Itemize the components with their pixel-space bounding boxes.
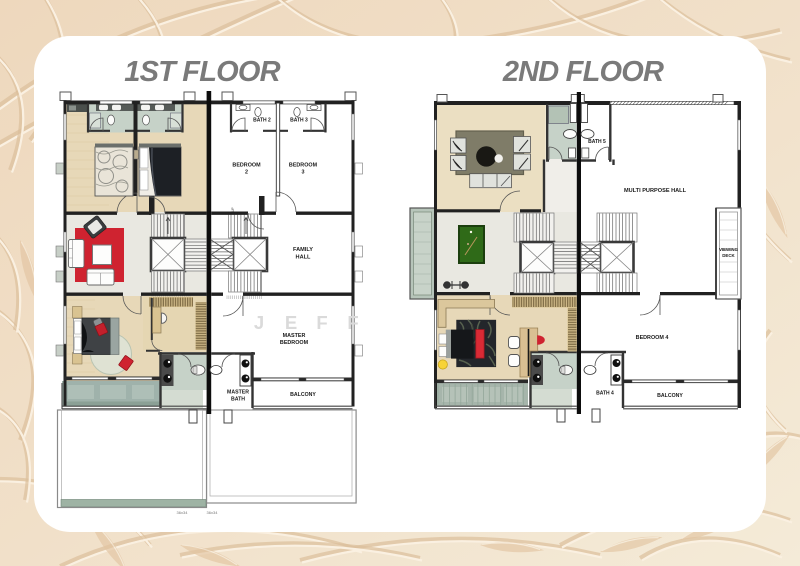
svg-text:MASTER: MASTER (227, 390, 249, 396)
svg-text:1ST FLOOR: 1ST FLOOR (124, 56, 280, 88)
svg-text:J: J (254, 312, 264, 333)
svg-text:3: 3 (302, 170, 305, 176)
svg-text:BEDROOM: BEDROOM (289, 163, 318, 169)
svg-text:BATH: BATH (231, 397, 245, 403)
svg-text:BALCONY: BALCONY (657, 393, 683, 399)
svg-text:F: F (316, 312, 327, 333)
svg-text:2: 2 (245, 170, 248, 176)
svg-text:BATH 3: BATH 3 (290, 118, 308, 124)
svg-text:BALCONY: BALCONY (290, 392, 316, 398)
svg-text:MASTER: MASTER (283, 333, 306, 339)
svg-text:36x34: 36x34 (207, 510, 219, 515)
svg-text:FAMILY: FAMILY (293, 247, 313, 253)
svg-text:BATH 4: BATH 4 (596, 391, 614, 397)
svg-text:BEDROOM: BEDROOM (280, 340, 309, 346)
svg-text:VIEWING: VIEWING (719, 247, 739, 252)
svg-text:BEDROOM: BEDROOM (232, 163, 261, 169)
svg-text:DECK: DECK (722, 253, 735, 258)
svg-text:F: F (347, 312, 358, 333)
svg-text:36x34: 36x34 (177, 510, 189, 515)
svg-text:BATH 2: BATH 2 (253, 118, 271, 124)
svg-text:HALL: HALL (296, 255, 311, 261)
svg-text:BATH 5: BATH 5 (588, 139, 606, 145)
svg-text:MULTI PURPOSE HALL: MULTI PURPOSE HALL (624, 188, 687, 194)
svg-text:UP: UP (231, 206, 235, 212)
svg-text:E: E (285, 312, 297, 333)
svg-text:2ND FLOOR: 2ND FLOOR (502, 56, 664, 88)
svg-text:BEDROOM 4: BEDROOM 4 (636, 335, 669, 341)
